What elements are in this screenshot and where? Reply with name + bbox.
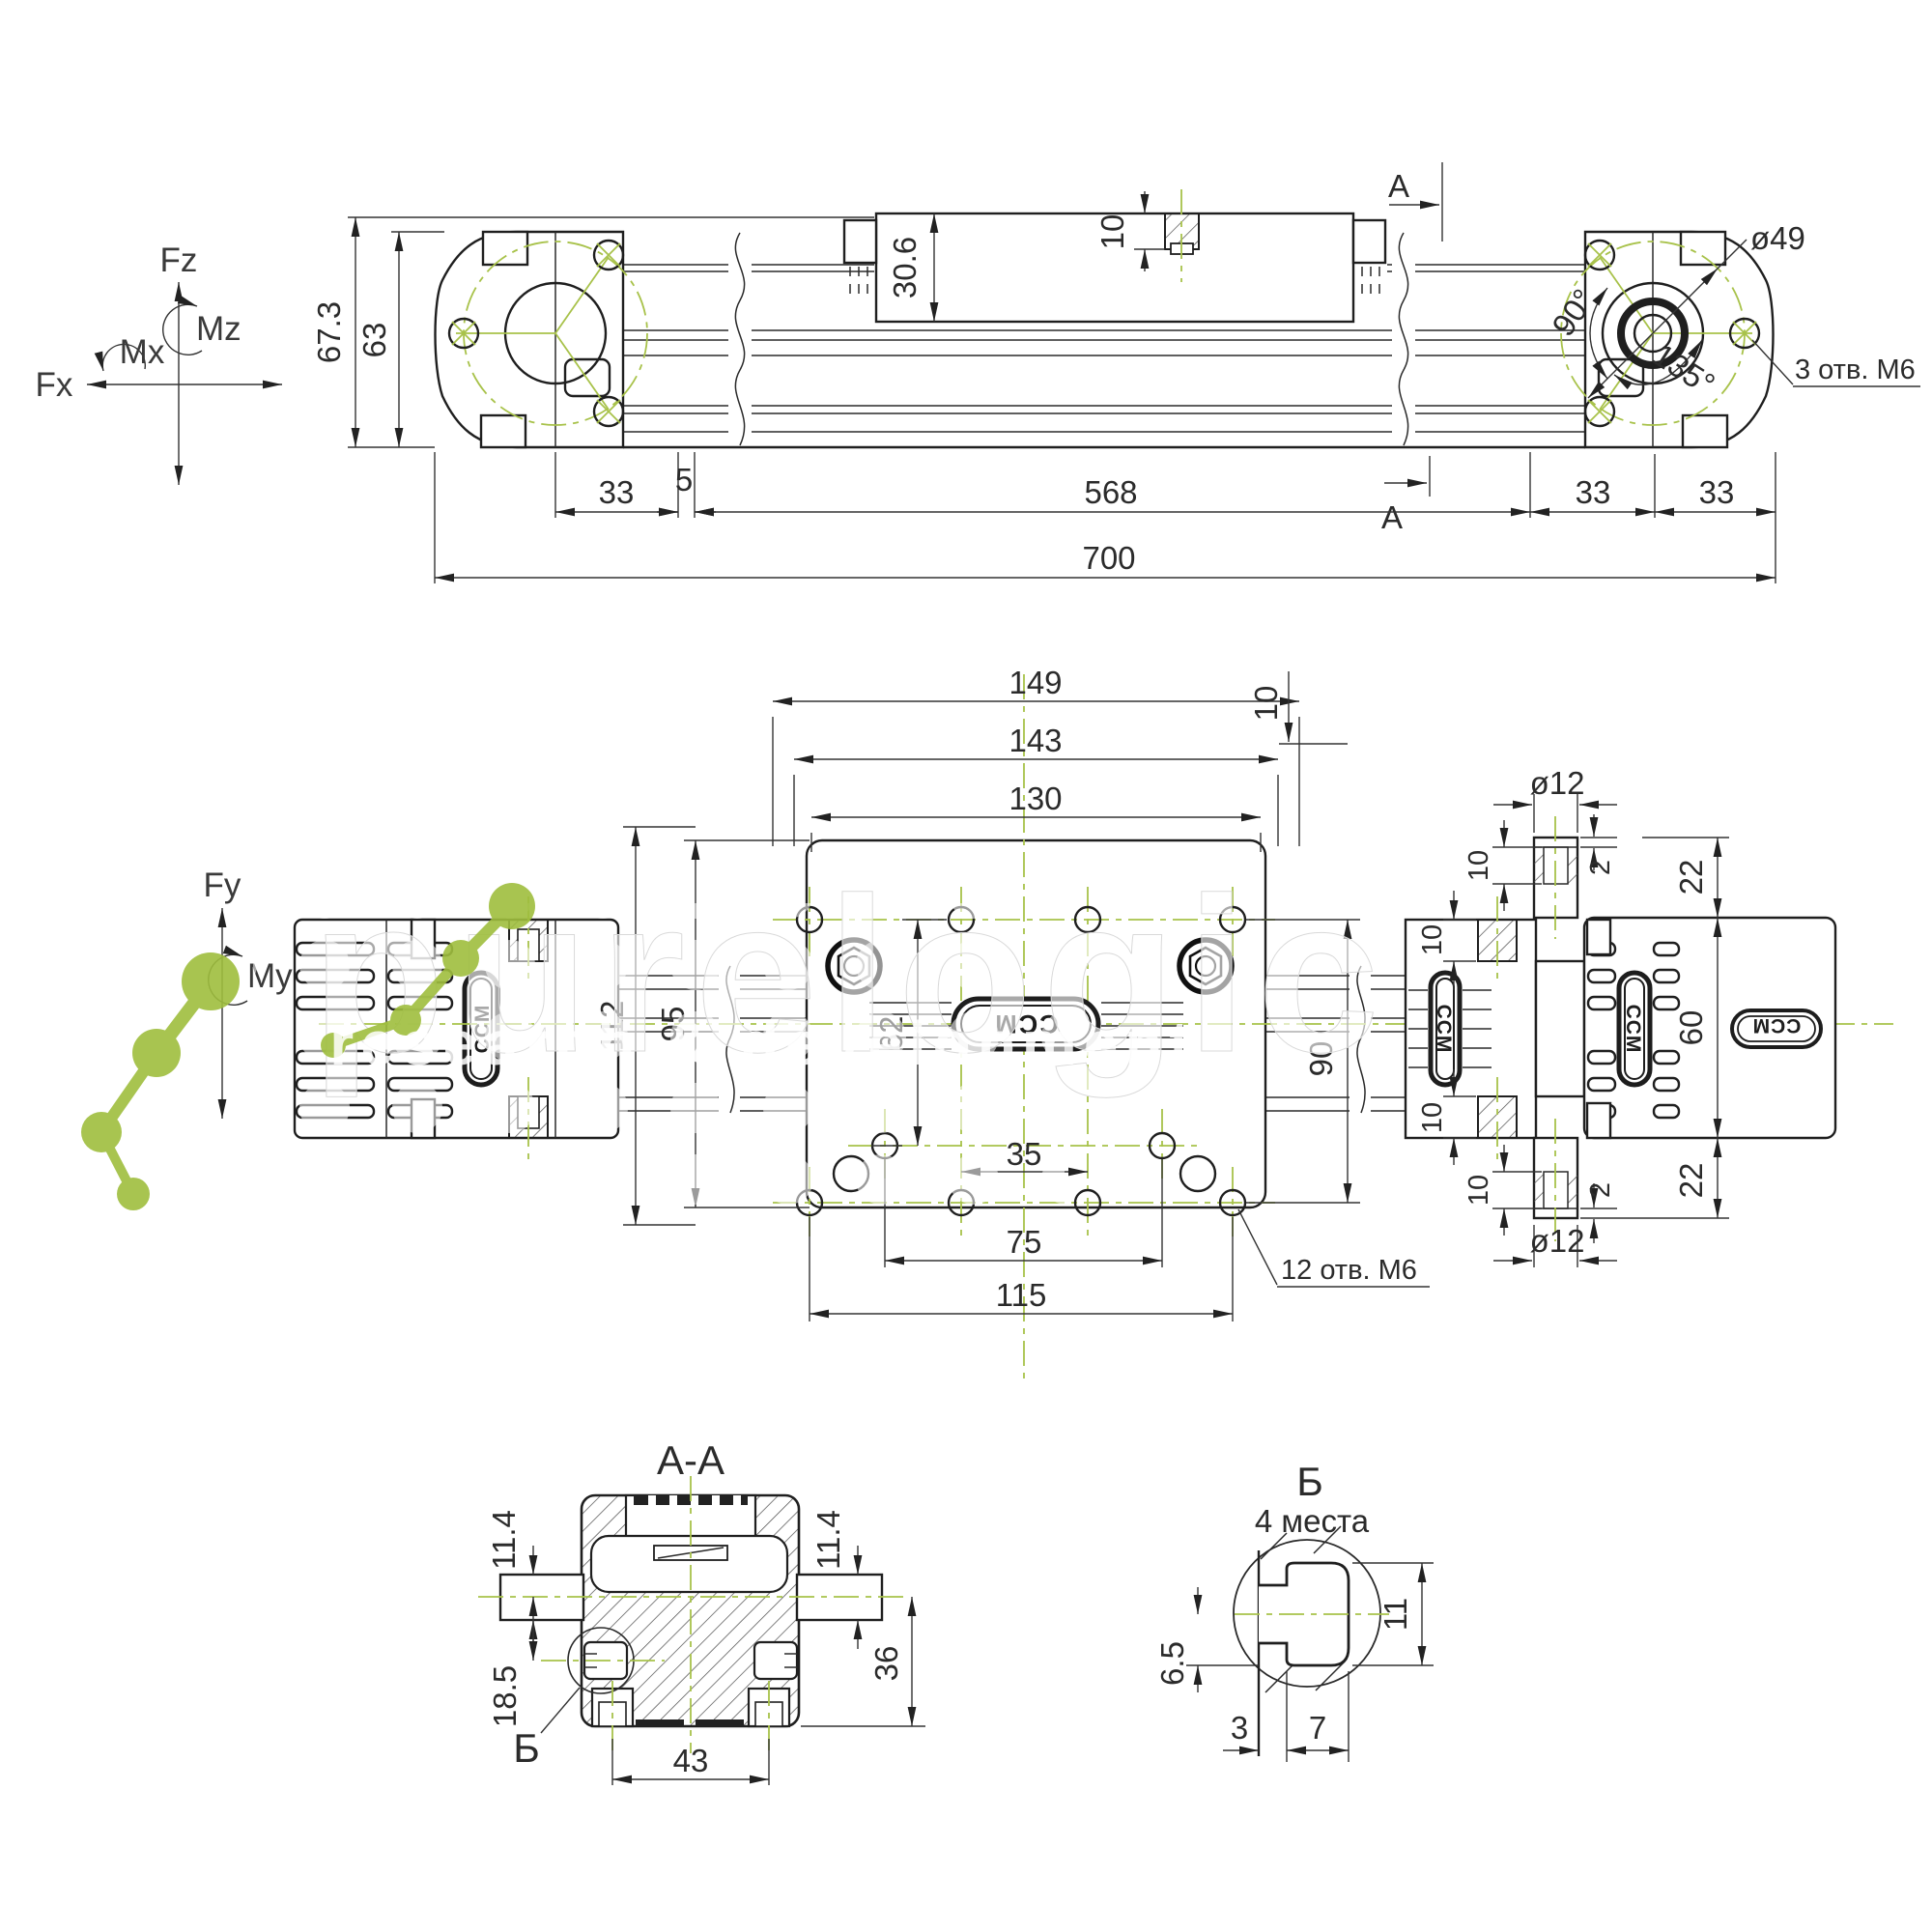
axis-label-fx: Fx	[36, 366, 73, 404]
dim-2-top: 2	[1585, 860, 1616, 875]
section-marker-top: A	[1388, 162, 1442, 241]
dim-568: 568	[1084, 474, 1137, 510]
note-12-holes-m6: 12 отв. M6	[1281, 1255, 1417, 1286]
axis-label-fz: Fz	[160, 241, 198, 279]
technical-drawing: Fz Mz Mx Fx	[0, 0, 1932, 1932]
dim-22-top: 22	[1673, 860, 1709, 895]
svg-text:CCM: CCM	[1752, 1014, 1802, 1037]
detail-b-view: Б 4 места 11 6.5 3 7	[1154, 1459, 1434, 1762]
dim-33-left: 33	[599, 474, 635, 510]
dim-130: 130	[1009, 781, 1062, 816]
carriage-block	[844, 189, 1385, 322]
dim-port-dia-top: ø12	[1530, 765, 1585, 801]
dim-11-4-left: 11.4	[486, 1510, 522, 1570]
mount-flange	[436, 232, 648, 447]
ccm-logo-outer-vertical: CCM	[1619, 973, 1650, 1085]
detail-ref-label: Б	[513, 1725, 540, 1771]
ccm-logo-inner-right: CCM	[1431, 973, 1460, 1085]
detail-b-title: Б	[1296, 1459, 1323, 1504]
dim-3: 3	[1231, 1710, 1248, 1746]
dim-7: 7	[1309, 1710, 1326, 1746]
section-aa-title: A-A	[657, 1437, 724, 1483]
dim-port-dia-bottom: ø12	[1530, 1223, 1585, 1259]
rod-neck	[1534, 816, 1584, 1241]
section-label-a-bottom: A	[1381, 499, 1403, 535]
dim-bolt-circle: ø49	[1750, 220, 1805, 256]
dim-33-right: 33	[1699, 474, 1735, 510]
svg-text:CCM: CCM	[1433, 1005, 1455, 1054]
t-slot	[754, 1642, 797, 1679]
axis-label-mx: Mx	[120, 333, 165, 371]
ccm-logo-outer-horizontal: CCM	[1732, 1010, 1821, 1047]
dim-43: 43	[673, 1743, 709, 1778]
detail-b-subtitle: 4 места	[1255, 1503, 1370, 1539]
section-marker-bottom: A	[1381, 456, 1430, 535]
dim-36: 36	[868, 1646, 904, 1682]
side-bottom-dims: 33 5 568 33 33 700	[435, 452, 1776, 583]
axis-label-mz: Mz	[196, 310, 241, 348]
dim-10-plate: 10	[1248, 686, 1284, 722]
section-aa-view: A-A Б 11.4 11.4 18.5 36 43	[478, 1437, 925, 1785]
dim-75: 75	[1007, 1224, 1042, 1260]
watermark-tagline: research & development	[329, 1009, 1196, 1078]
svg-text:CCM: CCM	[1622, 1005, 1644, 1054]
axis-label-fy: Fy	[204, 867, 241, 904]
cad-drawing-page: Fz Mz Mx Fx	[0, 0, 1932, 1932]
dim-115: 115	[996, 1277, 1047, 1313]
dim-143: 143	[1009, 723, 1062, 758]
svg-text:63: 63	[356, 323, 392, 358]
dim-10-b: 10	[1463, 850, 1494, 881]
dim-5: 5	[675, 462, 693, 497]
dim-10-d: 10	[1417, 1102, 1448, 1133]
dim-11-4-right: 11.4	[810, 1510, 846, 1570]
dim-10-a: 10	[1417, 924, 1448, 955]
side-elevation-view: 90° 135° ø49 3 отв. M6 A A 67.3 63 30.6	[311, 162, 1920, 583]
top-pin	[1534, 816, 1577, 939]
dim-33-mid: 33	[1576, 474, 1611, 510]
dim-18-5: 18.5	[487, 1665, 523, 1727]
svg-text:30.6: 30.6	[887, 237, 923, 298]
right-outer-block: CCM CCM	[1584, 918, 1835, 1138]
dim-700: 700	[1082, 540, 1135, 576]
dim-11: 11	[1378, 1598, 1413, 1631]
note-3-holes-m6: 3 отв. M6	[1795, 355, 1916, 385]
dim-10-c: 10	[1463, 1175, 1494, 1206]
section-label-a-top: A	[1388, 168, 1409, 204]
svg-text:67.3: 67.3	[311, 301, 347, 363]
svg-text:10: 10	[1094, 214, 1130, 250]
dim-6-5: 6.5	[1154, 1641, 1190, 1686]
dim-22-bottom: 22	[1673, 1163, 1709, 1199]
dim-63: 63	[356, 232, 444, 447]
dim-60: 60	[1673, 1010, 1709, 1046]
dim-2-bottom: 2	[1585, 1182, 1616, 1198]
cavity	[591, 1536, 787, 1592]
dim-149: 149	[1009, 665, 1062, 700]
axis-cross-force-top: Fz Mz Mx Fx	[36, 241, 282, 485]
